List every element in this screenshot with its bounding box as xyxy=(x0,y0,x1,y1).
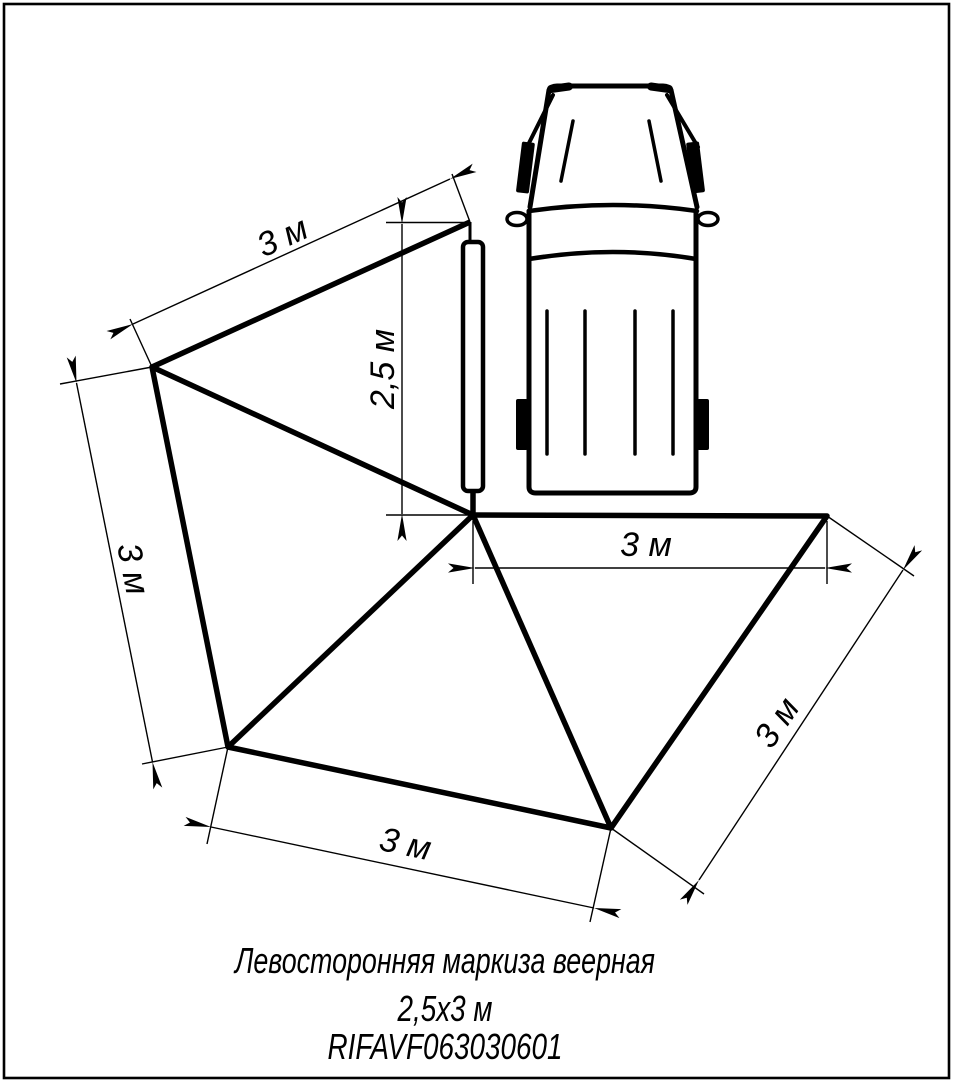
vehicle-rear-wheel-right xyxy=(697,399,709,450)
awning-mount-case xyxy=(463,242,483,491)
dimension-label-top: 3 м xyxy=(251,209,314,265)
extension-line xyxy=(130,319,152,367)
caption-line-3: RIFAVF063030601 xyxy=(328,1026,563,1067)
dimension-label-right: 3 м xyxy=(747,691,808,755)
arrowhead xyxy=(107,320,135,340)
dimension-label-rear: 3 м xyxy=(620,526,672,564)
dimension-top xyxy=(107,164,477,367)
arrowhead xyxy=(825,563,852,572)
vehicle-wiper-left xyxy=(561,121,573,181)
extension-line xyxy=(452,174,470,222)
dimension-line xyxy=(699,570,903,880)
awning-outer-edge xyxy=(152,222,827,828)
awning-technical-drawing: 3 м 2,5 м 3 м 3 м 3 м 3 м Левосторонняя … xyxy=(0,0,953,1082)
awning-spoke-left-bottom xyxy=(228,515,473,747)
arrowhead xyxy=(448,563,475,572)
dimension-label-left: 3 м xyxy=(109,540,156,598)
dimension-labels: 3 м 2,5 м 3 м 3 м 3 м 3 м xyxy=(109,209,807,868)
awning-spoke-bottom xyxy=(473,515,611,828)
arrowhead xyxy=(148,761,162,789)
dimension-label-bottom: 3 м xyxy=(376,820,434,868)
extension-line xyxy=(611,828,704,894)
vehicle-door-handle-left xyxy=(507,213,527,226)
caption-line-1: Левосторонняя маркиза веерная xyxy=(234,940,655,981)
caption-line-2: 2,5х3 м xyxy=(397,988,493,1029)
arrowhead xyxy=(67,356,81,384)
arrowhead xyxy=(397,514,406,541)
vehicle-cab-divide xyxy=(529,252,696,259)
awning-spoke-left-top xyxy=(152,367,473,515)
arrowhead xyxy=(448,164,476,184)
extension-line xyxy=(142,747,228,764)
vehicle-rear-wheel-left xyxy=(516,399,528,450)
awning-fan xyxy=(152,222,827,828)
arrowhead xyxy=(184,817,212,832)
arrowhead xyxy=(593,904,621,919)
vehicle-wiper-right xyxy=(649,121,661,181)
vehicle-windshield-base xyxy=(529,205,697,211)
dimension-label-mast: 2,5 м xyxy=(364,329,402,410)
vehicle-door-handle-right xyxy=(698,213,718,226)
drawing-page: 3 м 2,5 м 3 м 3 м 3 м 3 м Левосторонняя … xyxy=(0,0,953,1082)
vehicle-front-corner-right xyxy=(651,87,669,90)
vehicle-front-corner-left xyxy=(551,87,569,90)
caption: Левосторонняя маркиза веерная 2,5х3 м RI… xyxy=(234,940,655,1067)
vehicle-top-view xyxy=(507,86,718,493)
